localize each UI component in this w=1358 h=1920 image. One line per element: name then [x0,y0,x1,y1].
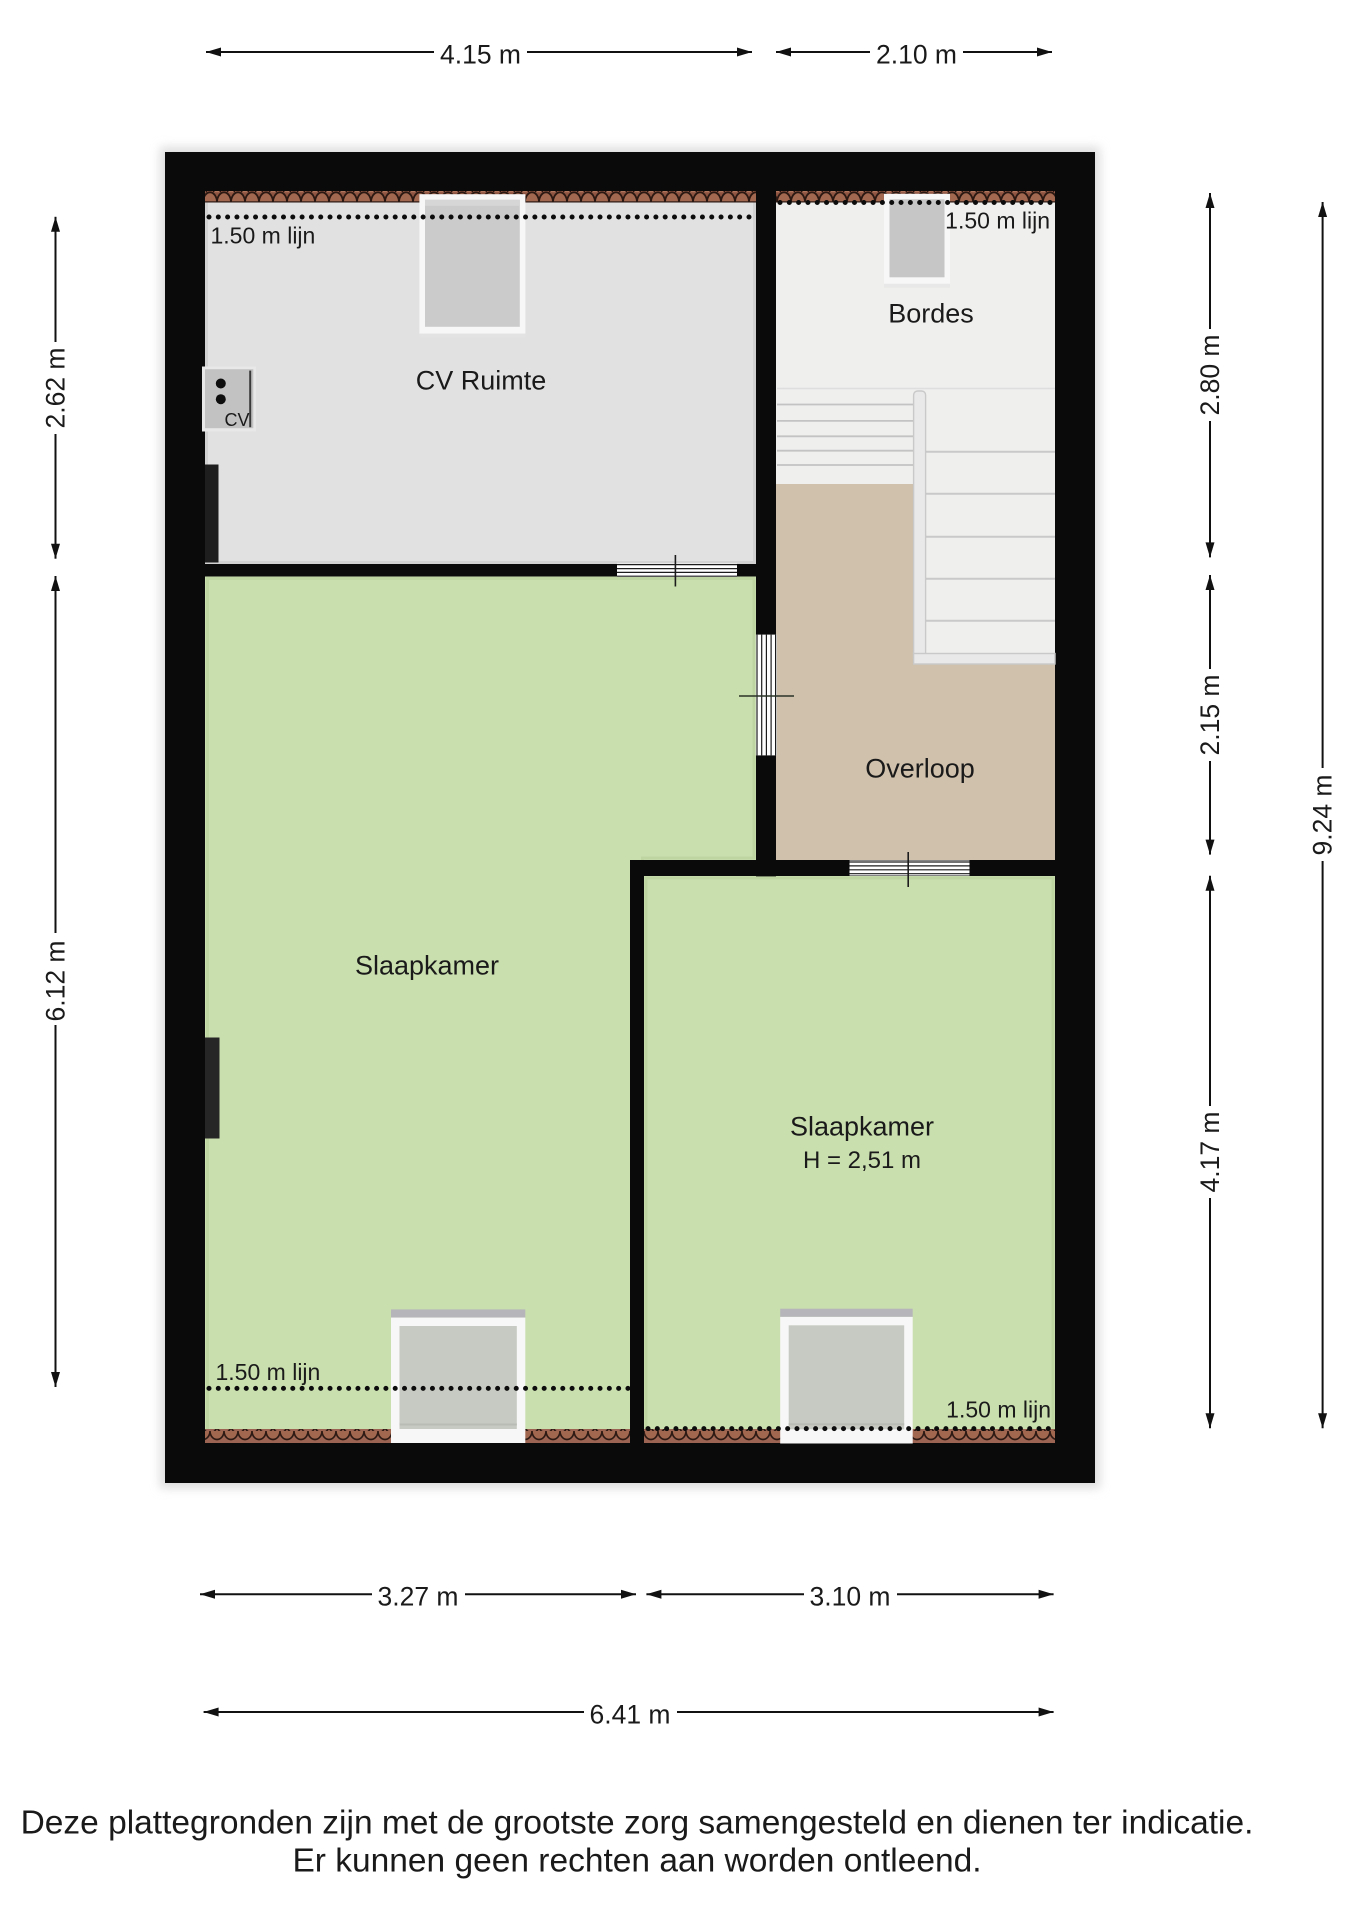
svg-text:Overloop: Overloop [865,754,975,784]
svg-text:4.17 m: 4.17 m [1195,1111,1225,1192]
svg-text:Slaapkamer: Slaapkamer [355,950,499,980]
svg-text:6.12 m: 6.12 m [41,940,71,1021]
svg-text:1.50 m lijn: 1.50 m lijn [945,208,1050,234]
svg-text:3.10 m: 3.10 m [809,1582,890,1612]
svg-text:9.24 m: 9.24 m [1308,774,1338,855]
svg-text:Er kunnen geen rechten aan wor: Er kunnen geen rechten aan worden ontlee… [292,1842,981,1879]
svg-text:4.15 m: 4.15 m [440,39,521,69]
svg-text:2.80 m: 2.80 m [1195,334,1225,415]
svg-text:1.50 m lijn: 1.50 m lijn [946,1397,1051,1423]
svg-text:1.50 m lijn: 1.50 m lijn [216,1359,321,1385]
svg-text:2.10 m: 2.10 m [876,39,957,69]
svg-text:Bordes: Bordes [888,299,974,329]
svg-text:H = 2,51 m: H = 2,51 m [803,1147,921,1174]
svg-text:CV: CV [225,410,250,430]
svg-text:1.50 m lijn: 1.50 m lijn [211,222,316,248]
svg-text:CV Ruimte: CV Ruimte [416,366,547,396]
svg-text:3.27 m: 3.27 m [377,1582,458,1612]
svg-text:6.41 m: 6.41 m [589,1699,670,1729]
svg-text:2.62 m: 2.62 m [41,347,71,428]
svg-text:Slaapkamer: Slaapkamer [790,1111,934,1141]
svg-text:2.15 m: 2.15 m [1195,674,1225,755]
svg-text:Deze plattegronden zijn met de: Deze plattegronden zijn met de grootste … [21,1805,1254,1842]
